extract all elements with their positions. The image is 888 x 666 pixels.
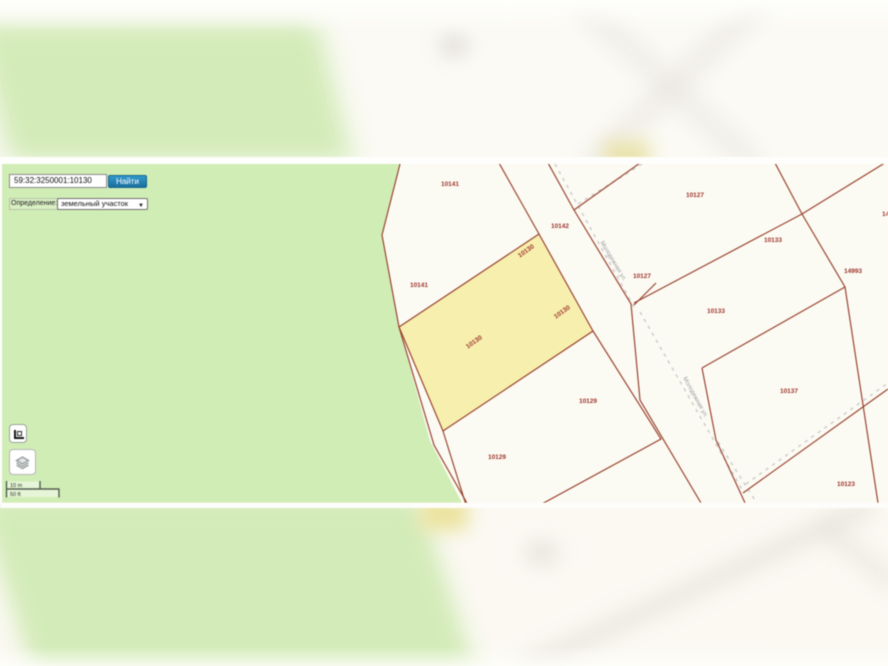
svg-text:10127: 10127 xyxy=(686,192,704,199)
svg-text:50 ft: 50 ft xyxy=(10,492,21,498)
svg-text:14993: 14993 xyxy=(882,211,888,218)
svg-text:10129: 10129 xyxy=(579,398,597,405)
svg-text:10123: 10123 xyxy=(837,481,855,488)
svg-text:10142: 10142 xyxy=(551,223,569,230)
svg-text:10141: 10141 xyxy=(441,181,459,188)
svg-text:10141: 10141 xyxy=(410,282,428,289)
svg-text:10129: 10129 xyxy=(488,454,506,461)
svg-text:10133: 10133 xyxy=(764,237,782,244)
svg-text:10137: 10137 xyxy=(780,388,798,395)
svg-text:14993: 14993 xyxy=(844,268,862,275)
svg-text:10133: 10133 xyxy=(707,308,725,315)
svg-text:10 m: 10 m xyxy=(10,483,23,489)
svg-text:10127: 10127 xyxy=(633,273,651,280)
